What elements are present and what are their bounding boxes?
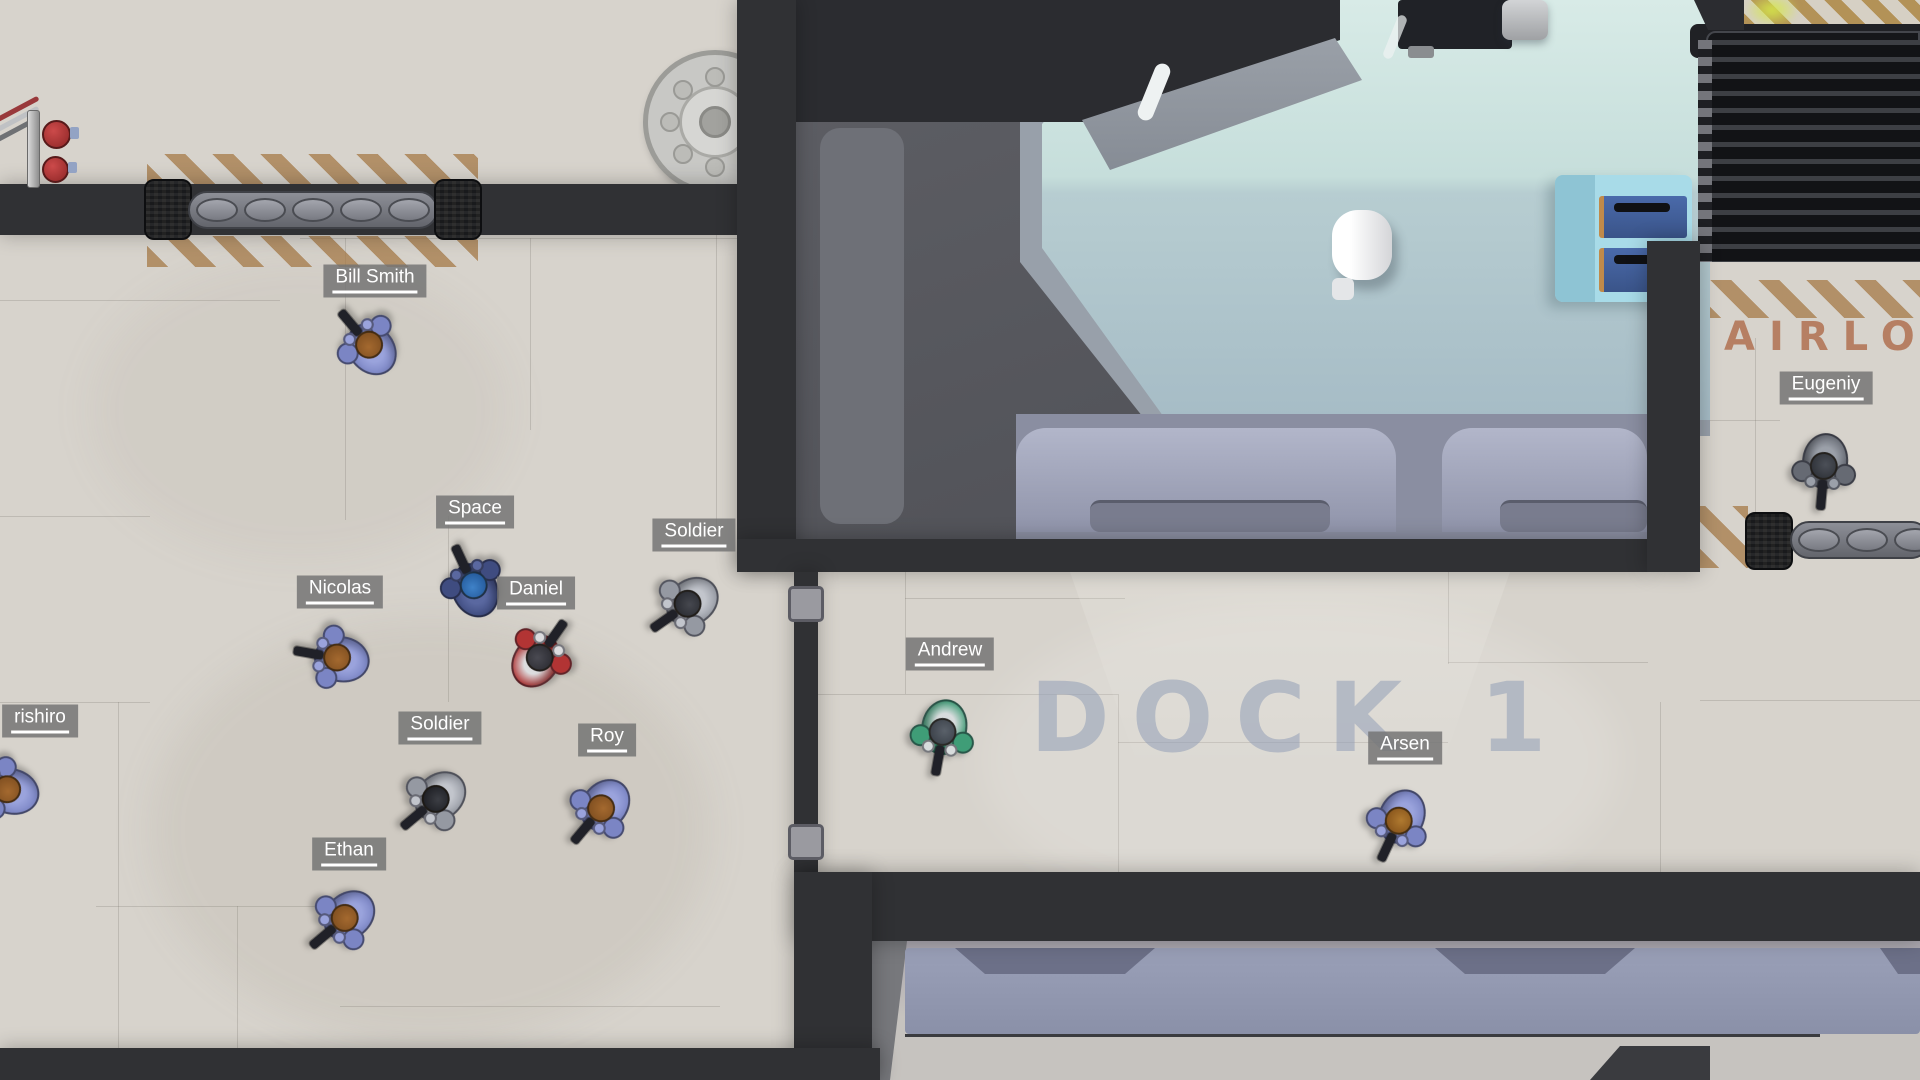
player[interactable]: Andrew bbox=[908, 694, 978, 764]
player[interactable]: Eugeniy bbox=[1789, 428, 1859, 498]
hazard-stripes bbox=[147, 236, 478, 267]
dark-machine[interactable] bbox=[1398, 0, 1512, 49]
player-name-label: rishiro bbox=[2, 705, 78, 738]
player-name-label: Soldier bbox=[398, 712, 481, 745]
red-lamp bbox=[42, 120, 71, 149]
player-name-label: Bill Smith bbox=[323, 265, 426, 298]
player-figure bbox=[489, 611, 586, 708]
wall-dock-south bbox=[737, 539, 1647, 572]
wall-bottom-left bbox=[0, 1048, 880, 1080]
player-name-label: Ethan bbox=[312, 838, 386, 871]
player[interactable]: rishiro bbox=[0, 755, 45, 825]
player[interactable]: Roy bbox=[568, 771, 638, 841]
door-bar bbox=[1790, 521, 1920, 559]
lamp-tab bbox=[68, 162, 77, 173]
player-figure bbox=[298, 867, 397, 966]
player-gun bbox=[1816, 480, 1828, 511]
player-figure bbox=[389, 748, 488, 847]
player-name-label: Eugeniy bbox=[1780, 372, 1873, 405]
shutter-teeth bbox=[1698, 40, 1712, 262]
white-cylinder[interactable] bbox=[1332, 210, 1392, 280]
player-name-label: Daniel bbox=[497, 577, 575, 610]
player-figure bbox=[0, 747, 53, 833]
warning-lights[interactable] bbox=[0, 96, 92, 200]
player-name-label: Space bbox=[436, 496, 514, 529]
panel-notch bbox=[1435, 948, 1635, 974]
game-viewport: DOCK 1 AIRLOC bbox=[0, 0, 1920, 1080]
door-end-cap bbox=[1745, 512, 1793, 570]
cabinet-side-shade bbox=[1555, 175, 1595, 302]
gray-pillar bbox=[1502, 0, 1548, 40]
floor-text-airlock: AIRLOC bbox=[1724, 314, 1920, 360]
wall-vertical-center bbox=[737, 0, 796, 572]
lamp-tab bbox=[70, 127, 79, 139]
player[interactable]: Arsen bbox=[1365, 783, 1435, 853]
dock-room-column bbox=[820, 128, 904, 524]
player[interactable]: Soldier bbox=[403, 762, 473, 832]
floor-text-dock: DOCK 1 bbox=[1030, 662, 1568, 774]
hazard-stripes bbox=[1700, 280, 1920, 318]
red-lamp bbox=[42, 156, 69, 183]
player-name-label: Nicolas bbox=[297, 576, 383, 609]
mount-bar bbox=[27, 110, 40, 188]
player[interactable]: Nicolas bbox=[305, 623, 375, 693]
hazard-stripes bbox=[1698, 506, 1748, 568]
panel-slot bbox=[1090, 500, 1330, 532]
door-end-cap bbox=[144, 179, 192, 240]
player-figure bbox=[554, 757, 653, 856]
player[interactable]: Soldier bbox=[655, 567, 725, 637]
player-figure bbox=[641, 553, 738, 650]
wall-connector bbox=[788, 586, 824, 622]
hazard-stripes bbox=[147, 154, 478, 185]
dark-machine-tab bbox=[1408, 46, 1434, 58]
shutter-grid bbox=[1710, 40, 1920, 262]
panel-slot bbox=[1500, 500, 1647, 532]
wall-dock-east bbox=[1647, 241, 1700, 572]
player-figure bbox=[902, 688, 983, 769]
player-figure bbox=[322, 298, 421, 397]
panel-seam bbox=[905, 1034, 1820, 1037]
wall-bottom-room-north bbox=[794, 872, 1920, 941]
panel-notch bbox=[955, 948, 1155, 974]
door-end-cap bbox=[434, 179, 482, 240]
player[interactable]: Ethan bbox=[312, 881, 382, 951]
player-figure bbox=[1786, 425, 1862, 501]
door-bar bbox=[188, 191, 438, 229]
white-cylinder-base bbox=[1332, 278, 1354, 300]
player-figure bbox=[299, 617, 380, 698]
hatch-hub bbox=[699, 106, 731, 138]
player-name-label: Andrew bbox=[906, 638, 994, 671]
player-name-label: Arsen bbox=[1368, 732, 1442, 765]
player-name-label: Soldier bbox=[652, 519, 735, 552]
player-name-label: Roy bbox=[578, 724, 636, 757]
wall-connector bbox=[788, 824, 824, 860]
player[interactable]: Daniel bbox=[503, 625, 573, 695]
drawer-handle bbox=[1614, 203, 1670, 212]
cabinet-drawer[interactable] bbox=[1599, 196, 1687, 238]
player[interactable]: Bill Smith bbox=[336, 312, 406, 382]
player-figure bbox=[1353, 771, 1446, 864]
